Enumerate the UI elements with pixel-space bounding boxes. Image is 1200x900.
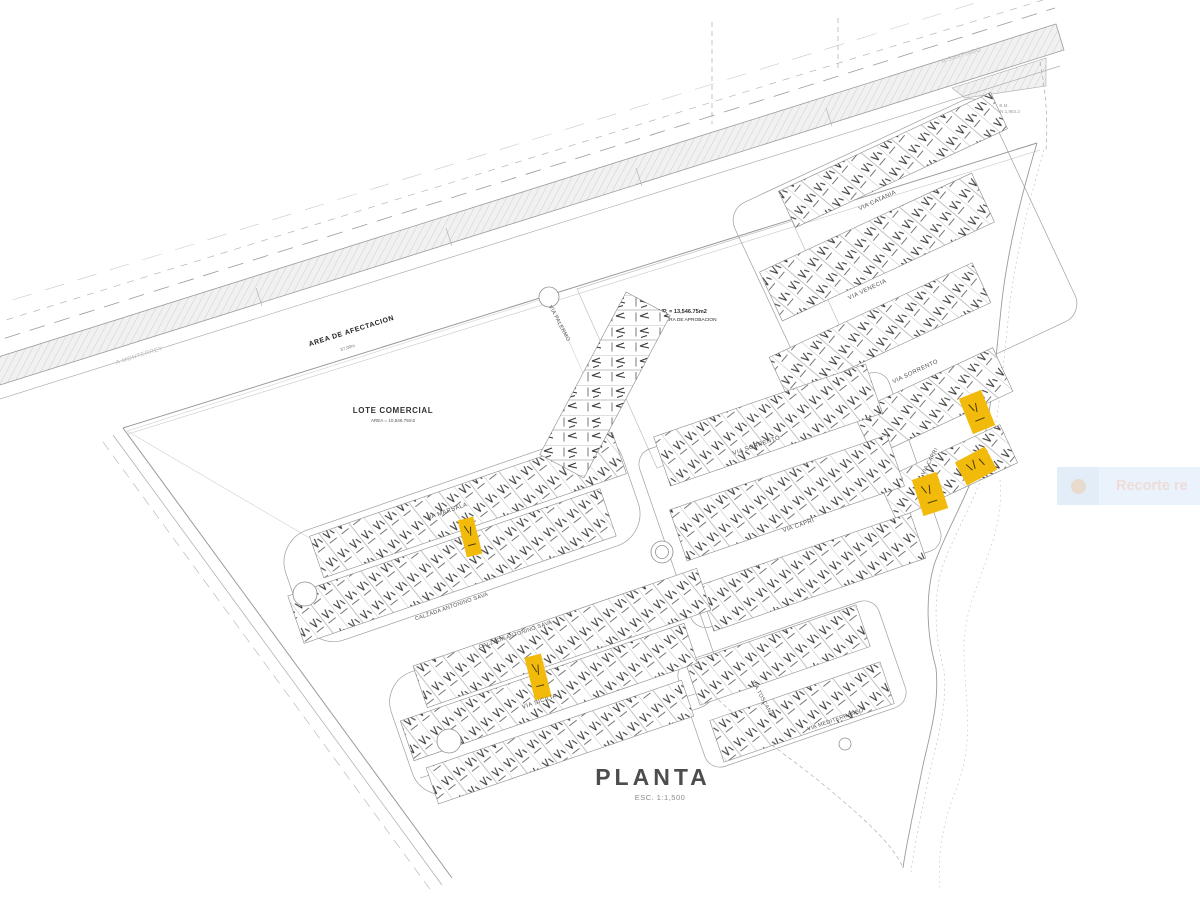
plan-title: PLANTA [595, 764, 711, 790]
culdesac-palermo [539, 287, 559, 307]
left-road-edge-2 [103, 442, 432, 892]
benchmark-note-1: B.M. [999, 103, 1008, 108]
affect-width-note: 37.00m [340, 343, 356, 352]
benchmark-note-2: N 1,983.3 [1000, 109, 1020, 114]
highway-band: AREA DE AFECTACION 37.00m A SANTIAGO A M… [0, 0, 1064, 404]
snip-toast[interactable]: Recorte re [1057, 467, 1200, 505]
snip-toast-text: Recorte re [1116, 478, 1188, 494]
snip-toast-icon [1071, 479, 1086, 494]
commercial-lot-title: LOTE COMERCIAL [353, 406, 433, 415]
commercial-lot-area: AREA = 10,846.75m2 [371, 418, 416, 423]
sheet-title: PLANTA ESC. 1:1,500 [595, 764, 711, 802]
boundary-left [123, 428, 452, 878]
roundabout-inner [656, 546, 669, 559]
culdesac-small [839, 738, 851, 750]
street-label-palermo: VIA PALERMO [547, 305, 571, 343]
culdesac-marsala [293, 582, 317, 606]
arroyo-dotted-line [939, 480, 1000, 888]
left-road-edge-1 [113, 435, 442, 885]
culdesac-sicilia [437, 729, 461, 753]
snip-toast-icon-box [1057, 467, 1099, 505]
site-plan: AREA DE AFECTACION 37.00m A SANTIAGO A M… [0, 0, 1200, 900]
plan-scale: ESC. 1:1,500 [635, 793, 686, 802]
direction-label-monterrey: A MONTERREY [115, 346, 164, 367]
screenshot-canvas: AREA DE AFECTACION 37.00m A SANTIAGO A M… [0, 0, 1200, 900]
